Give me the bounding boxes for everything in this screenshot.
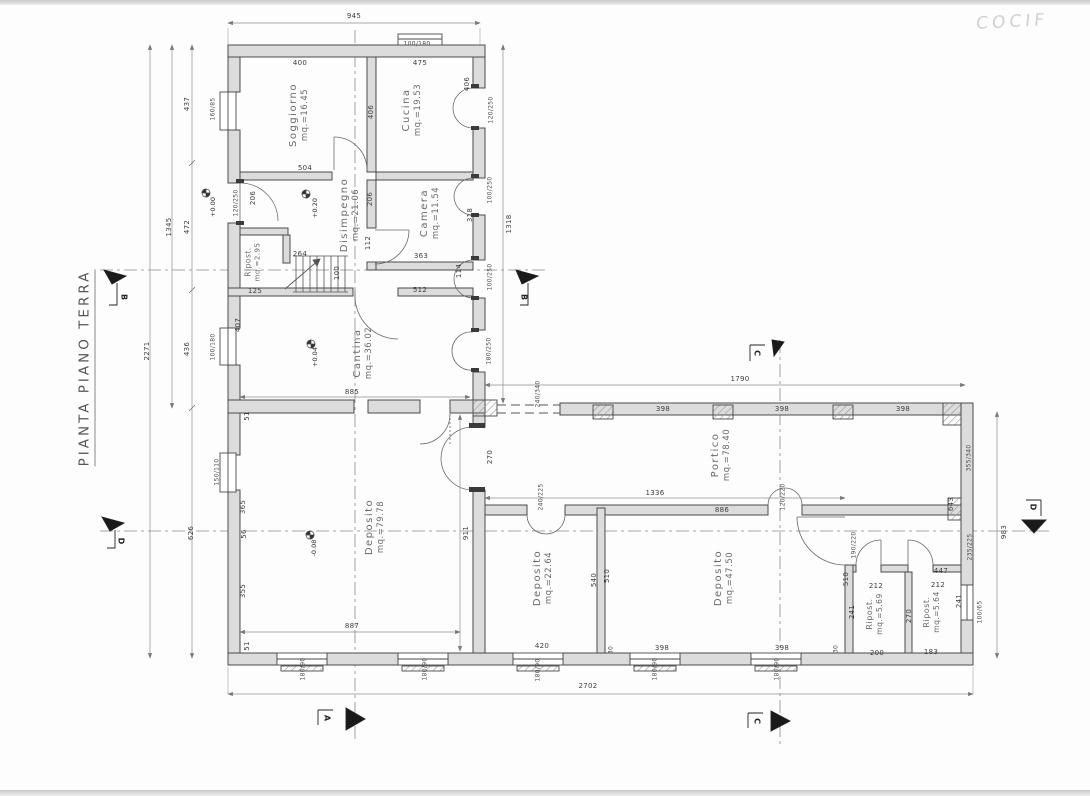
dim-label: 264 (293, 250, 307, 258)
dim-label: 1336 (645, 489, 664, 497)
door-size-label: 180/250 (486, 337, 493, 364)
window-size-label: 180/90 (535, 659, 542, 682)
dim-label: 911 (462, 526, 470, 540)
section-letter-d: D (1029, 504, 1038, 511)
dim-label: 472 (183, 220, 191, 234)
dim-label: 420 (535, 642, 549, 650)
plan-title: PIANTA PIANO TERRA (77, 270, 96, 467)
dim-label: 206 (366, 192, 374, 206)
dim-label: 398 (656, 405, 670, 413)
door-size-label: 240/225 (538, 483, 545, 510)
handwritten-note: COCIF (975, 10, 1049, 34)
section-letter-b: B (520, 294, 529, 300)
dim-label: 206 (249, 191, 257, 205)
room-label-deposito-1: Depositomq.=79.78 (363, 499, 387, 555)
dim-label: 510 (603, 569, 611, 583)
window-size-label: 180/90 (300, 658, 307, 681)
dim-label: 112 (364, 236, 372, 250)
section-letter-c: C (753, 350, 762, 356)
door-size-label: 120/220 (780, 483, 787, 510)
dim-label: 183 (924, 648, 938, 656)
dim-label: 125 (248, 287, 262, 295)
door-size-label: 120/250 (488, 96, 495, 123)
window-size-label: 180/90 (422, 658, 429, 681)
dim-label: 398 (896, 405, 910, 413)
room-label-portico: Porticomq.=78.40 (709, 429, 733, 481)
window-size-label: 180/90 (652, 658, 659, 681)
opening-size-label: 240/340 (535, 380, 542, 407)
dim-label: 363 (414, 252, 428, 260)
room-label-ripost-1: Ripost.mq.=2.95 (244, 243, 263, 282)
dim-label: 643 (947, 497, 955, 511)
dim-label: 626 (187, 526, 195, 540)
dim-label: 51 (243, 641, 251, 651)
doors (240, 88, 933, 565)
level-symbols (202, 189, 315, 539)
room-label-ripost-3: Ripost.mq.=5.64 (922, 591, 942, 632)
dim-label: 510 (842, 572, 850, 586)
floorplan-drawing (0, 0, 1090, 796)
room-label-cucina: Cucinamq.=19.53 (400, 84, 424, 136)
portico-open-edge (497, 405, 560, 413)
section-letter-b: B (120, 294, 129, 300)
opening-size-label: 235/225 (967, 533, 974, 560)
dim-label: 241 (848, 605, 856, 619)
window-size-label: 150/110 (214, 458, 221, 485)
dim-label: 436 (183, 342, 191, 356)
dim-label: 406 (463, 77, 471, 91)
room-label-camera: Cameramq.=11.54 (418, 187, 442, 239)
dim-label: 355 (239, 584, 247, 598)
room-label-deposito-2: Depositomq.=22.64 (531, 550, 555, 606)
level-value: -0.08 (310, 540, 318, 557)
dim-label: 365 (239, 500, 247, 514)
walls (228, 45, 973, 665)
dim-label: 407 (234, 318, 242, 332)
dim-label: 887 (345, 622, 359, 630)
dim-label: 512 (413, 286, 427, 294)
dim-label: 1345 (165, 217, 173, 236)
window-size-label: 100/65 (977, 601, 984, 624)
dim-label: 406 (367, 105, 375, 119)
dim-label: 398 (775, 644, 789, 652)
dim-label: 56 (240, 529, 248, 539)
window-size-label: 100/180 (210, 333, 217, 360)
dim-label: 1318 (505, 214, 513, 233)
scanned-floor-plan: PIANTA PIANO TERRA COCIF Soggiornomq.=16… (0, 0, 1090, 796)
dim-label: 212 (931, 581, 945, 589)
dim-label: 540 (590, 573, 598, 587)
dim-label: 398 (775, 405, 789, 413)
dim-label: 945 (347, 12, 361, 20)
dim-label: 447 (934, 567, 948, 575)
dim-label: 437 (183, 97, 191, 111)
level-value: +0.00 (209, 197, 217, 217)
room-label-deposito-3: Depositomq.=47.50 (712, 550, 736, 606)
dim-label: 504 (298, 164, 312, 172)
section-letter-a: A (323, 715, 332, 721)
room-label-disimpegno: Disimpegnomq.=21.06 (338, 178, 362, 253)
dim-label: 51 (243, 411, 251, 421)
dim-label: 885 (345, 388, 359, 396)
dim-label: 2702 (578, 682, 597, 690)
section-letter-d: D (117, 538, 126, 545)
door-size-label: 120/250 (233, 189, 240, 216)
window-size-label: 160/85 (210, 98, 217, 121)
dim-label: 1790 (730, 375, 749, 383)
door-size-label: 100/250 (487, 176, 494, 203)
window-size-label: 100/180 (403, 41, 430, 48)
dim-label: 100 (333, 266, 341, 280)
section-letter-c: C (753, 718, 762, 724)
door-size-label: 190/220 (851, 531, 858, 558)
opening-size-label: 355/340 (966, 444, 973, 471)
dim-label: 114 (455, 264, 463, 278)
dim-label: 212 (869, 582, 883, 590)
level-value: +0.20 (311, 198, 319, 218)
dim-label: 270 (905, 609, 913, 623)
dim-label: 400 (293, 59, 307, 67)
dim-label: 30 (608, 646, 615, 654)
dim-label: 318 (466, 208, 474, 222)
dim-label: 30 (833, 645, 840, 653)
dim-label: 270 (486, 450, 494, 464)
dim-label: 886 (715, 506, 729, 514)
dim-label: 983 (1000, 525, 1008, 539)
dim-label: 475 (413, 59, 427, 67)
dim-label: 241 (955, 594, 963, 608)
window-size-label: 180/90 (774, 658, 781, 681)
room-label-soggiorno: Soggiornomq.=16.45 (287, 83, 311, 147)
room-label-cantina: Cantinamq.=36.02 (351, 327, 375, 379)
level-value: +0.04 (311, 347, 319, 367)
dim-label: 398 (655, 644, 669, 652)
door-size-label: 100/250 (487, 263, 494, 290)
room-label-ripost-2: Ripost.mq.=5.69 (865, 593, 885, 634)
dim-label: 200 (870, 649, 884, 657)
dim-label: 2271 (143, 341, 151, 360)
